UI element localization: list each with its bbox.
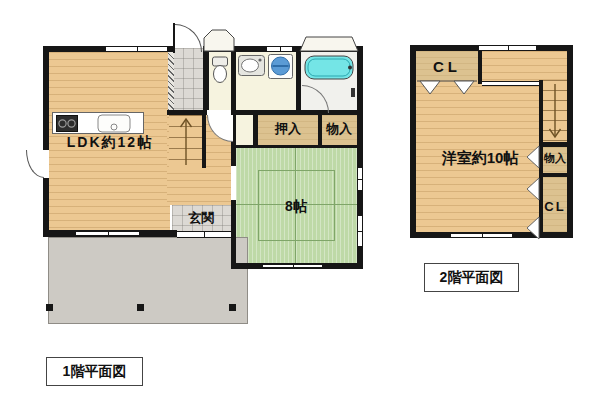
floor2-caption: 2階平面図 — [440, 269, 504, 287]
closet-label-cl-bottom: CL — [543, 200, 567, 214]
wall-segment — [478, 51, 482, 84]
floor-plan-canvas: LDK約12帖 玄関 押入 物入 8帖 — [0, 0, 600, 408]
closet-label-monoire-2f: 物入 — [541, 153, 569, 165]
floor2-plan: 洋室約10帖 CL 物入 CL — [0, 0, 600, 408]
room-label-yoshitsu: 洋室約10帖 — [425, 150, 535, 166]
wall-segment — [567, 45, 573, 238]
sliding-partition — [482, 81, 539, 86]
closet-door-icon — [526, 177, 540, 201]
floor1-caption-box: 1階平面図 — [46, 357, 143, 386]
window — [479, 45, 536, 51]
stairs-down-arrow-icon — [548, 82, 562, 140]
closet-door-icon — [526, 216, 540, 240]
stairs-2f — [543, 80, 567, 142]
floor2-caption-box: 2階平面図 — [424, 263, 519, 292]
wall-segment — [539, 173, 567, 177]
window — [451, 233, 512, 238]
closet-label-cl-top: CL — [416, 59, 478, 75]
floor1-caption: 1階平面図 — [63, 363, 127, 381]
wall-segment — [539, 142, 567, 147]
folding-door-icon — [417, 80, 477, 96]
